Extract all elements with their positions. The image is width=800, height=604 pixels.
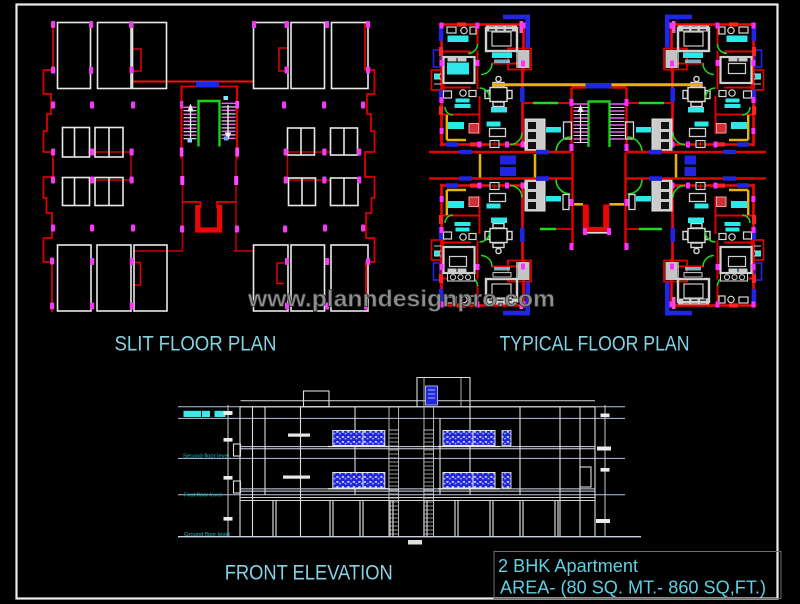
svg-text:Second floor level: Second floor level [183,453,229,459]
svg-text:First floor level: First floor level [184,492,222,498]
svg-text:TYPICAL FLOOR PLAN: TYPICAL FLOOR PLAN [500,333,690,356]
svg-text:SLIT FLOOR PLAN: SLIT FLOOR PLAN [115,333,277,356]
svg-text:AREA- (80 SQ. MT.- 860 SQ,FT.): AREA- (80 SQ. MT.- 860 SQ,FT.) [500,577,766,598]
svg-text:FRONT ELEVATION: FRONT ELEVATION [225,562,393,585]
svg-text:2 BHK Apartment: 2 BHK Apartment [498,555,638,576]
svg-text:www.planndesignpro.com: www.planndesignpro.com [247,286,555,312]
svg-text:Ground floor level: Ground floor level [184,532,230,538]
